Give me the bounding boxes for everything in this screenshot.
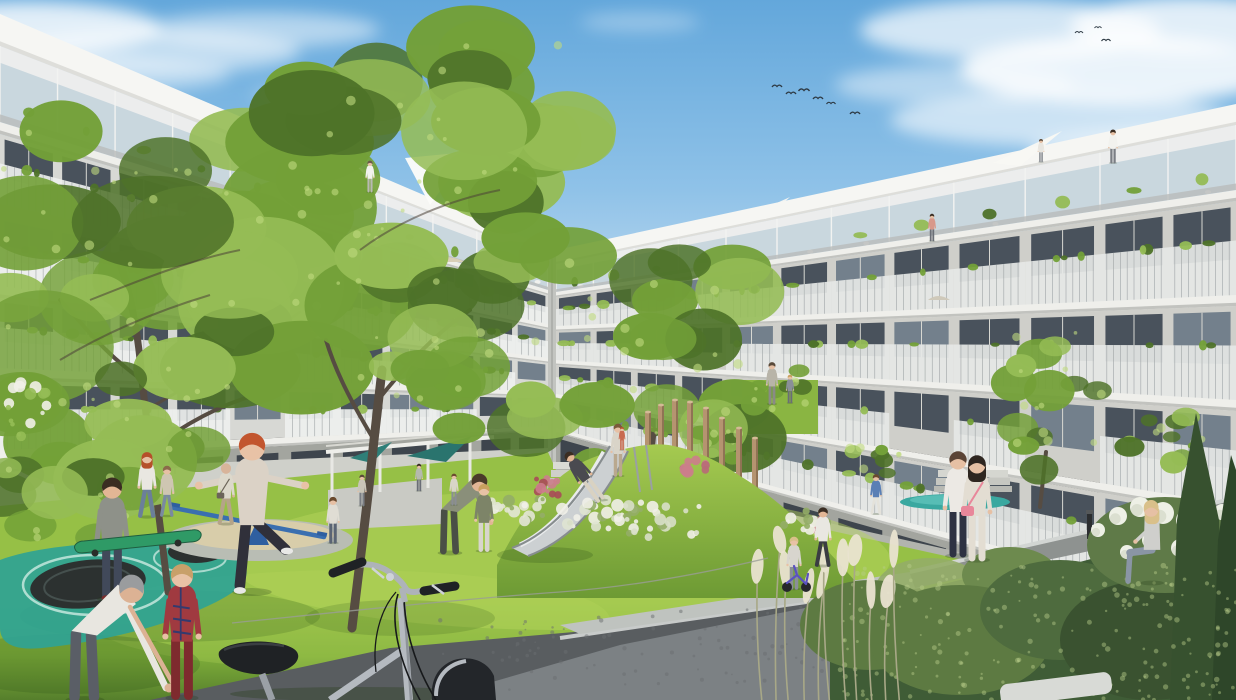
balcony-plant [569,340,575,346]
architectural-render: Architectural rendering of a new-build a… [0,0,1236,700]
balcony-plant [563,306,574,311]
balcony-plant [597,300,609,309]
handbag [217,493,225,499]
balcony-plant [1053,255,1060,262]
balcony-plant [855,340,868,349]
balcony-plant [557,340,570,346]
balcony-plant [842,470,856,476]
balcony-plant [847,340,855,348]
balcony-plant [920,268,926,275]
balcony-plant [1140,245,1146,255]
balcony-plant [786,283,799,288]
balcony-plant [605,340,614,347]
balcony-plant [1061,255,1068,260]
balcony-plant [967,419,974,426]
balcony-plant [916,483,925,493]
balcony-plant [1206,342,1216,348]
balcony-plant [1078,251,1085,261]
balcony-plant [909,342,919,346]
balcony-plant [518,334,530,339]
balcony-plant [968,264,979,271]
balcony-plant [860,406,868,414]
balcony-plant [1199,340,1207,350]
balcony-plant [34,169,40,178]
bike-bell [386,573,394,581]
balcony-plant [991,343,1000,347]
balcony-plant [1146,342,1154,348]
balcony-plant [411,407,419,412]
balcony-plant [577,377,583,382]
balcony-plant [1202,240,1215,246]
balcony-plant [900,481,914,489]
balcony-plant [1179,241,1192,250]
balcony-plant [579,304,590,309]
balcony-plant [81,406,90,413]
balcony-plant [21,165,32,176]
balcony-plant [808,340,818,348]
balcony-plant [1066,516,1076,524]
handbag [961,506,974,516]
balcony-plant [802,459,814,470]
balcony-plant [559,375,571,381]
balcony-plant [527,300,536,305]
balcony-plant [867,274,877,280]
